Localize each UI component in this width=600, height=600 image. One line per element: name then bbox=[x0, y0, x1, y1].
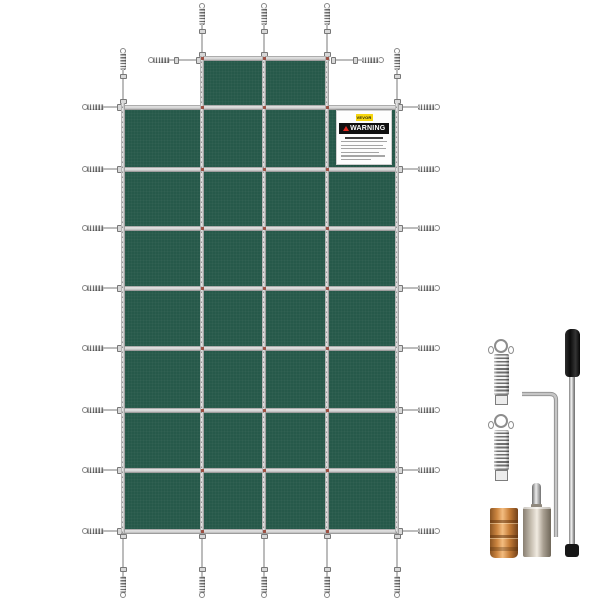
label-title-line bbox=[345, 137, 383, 139]
installation-rod-handle bbox=[565, 329, 580, 377]
brass-anchor-icon bbox=[490, 508, 518, 558]
label-fine-print-line bbox=[341, 155, 385, 156]
tension-spring-icon bbox=[488, 338, 516, 408]
warning-text: WARNING bbox=[350, 125, 385, 132]
tension-spring-icon bbox=[488, 413, 516, 483]
anchor-body-icon bbox=[523, 507, 551, 557]
anchor-top-highlight bbox=[523, 507, 551, 509]
label-fine-print-line bbox=[341, 159, 371, 160]
product-image-canvas: VEVOR WARNING bbox=[0, 0, 600, 600]
anchor-groove bbox=[490, 520, 518, 523]
anchor-collar bbox=[490, 547, 518, 551]
spring-coil bbox=[494, 430, 509, 470]
brand-badge: VEVOR bbox=[356, 114, 373, 121]
spring-base bbox=[495, 395, 508, 405]
spring-base bbox=[495, 470, 508, 481]
spring-loop bbox=[494, 339, 508, 353]
anchor-groove bbox=[490, 535, 518, 538]
spring-side-hook bbox=[508, 421, 514, 429]
spring-side-hook bbox=[488, 346, 494, 354]
label-fine-print-line bbox=[341, 152, 379, 153]
installation-rod-tip bbox=[565, 544, 579, 557]
spring-side-hook bbox=[508, 346, 514, 354]
warning-label: VEVOR WARNING bbox=[336, 110, 392, 165]
label-fine-print-line bbox=[341, 145, 383, 146]
spring-loop bbox=[494, 414, 508, 428]
label-fine-print-line bbox=[341, 148, 386, 149]
warning-bar: WARNING bbox=[339, 123, 389, 134]
spring-coil bbox=[494, 354, 509, 395]
accessory-kit bbox=[0, 0, 600, 600]
installation-rod-shaft bbox=[569, 376, 575, 546]
warning-triangle-icon bbox=[343, 126, 349, 131]
label-fine-print-line bbox=[341, 141, 387, 142]
spring-side-hook bbox=[488, 421, 494, 429]
